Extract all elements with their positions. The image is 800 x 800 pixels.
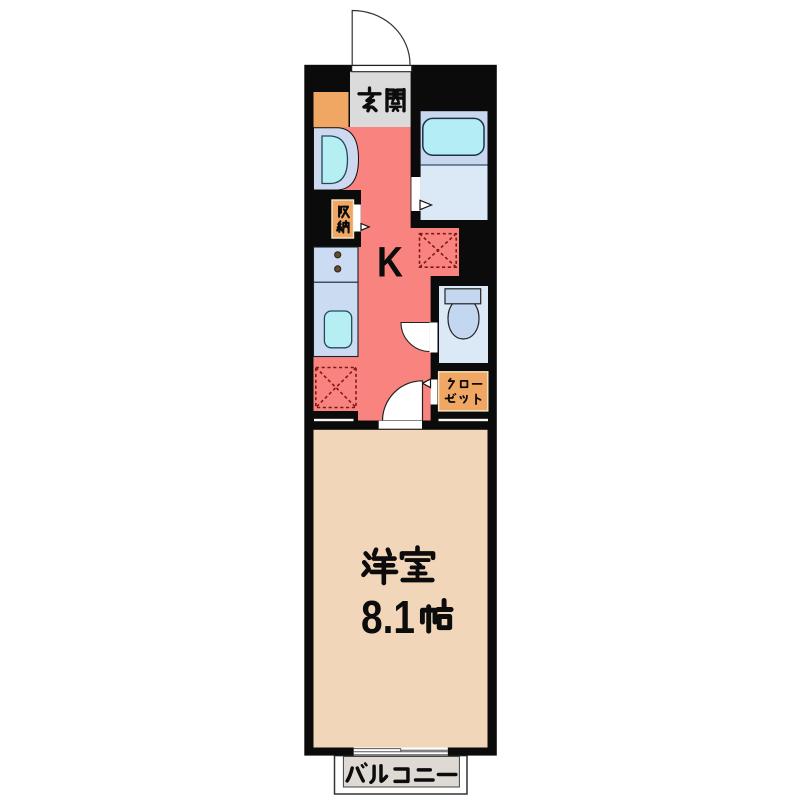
svg-text:8.1: 8.1 [361, 591, 415, 643]
svg-text:K: K [377, 239, 403, 287]
